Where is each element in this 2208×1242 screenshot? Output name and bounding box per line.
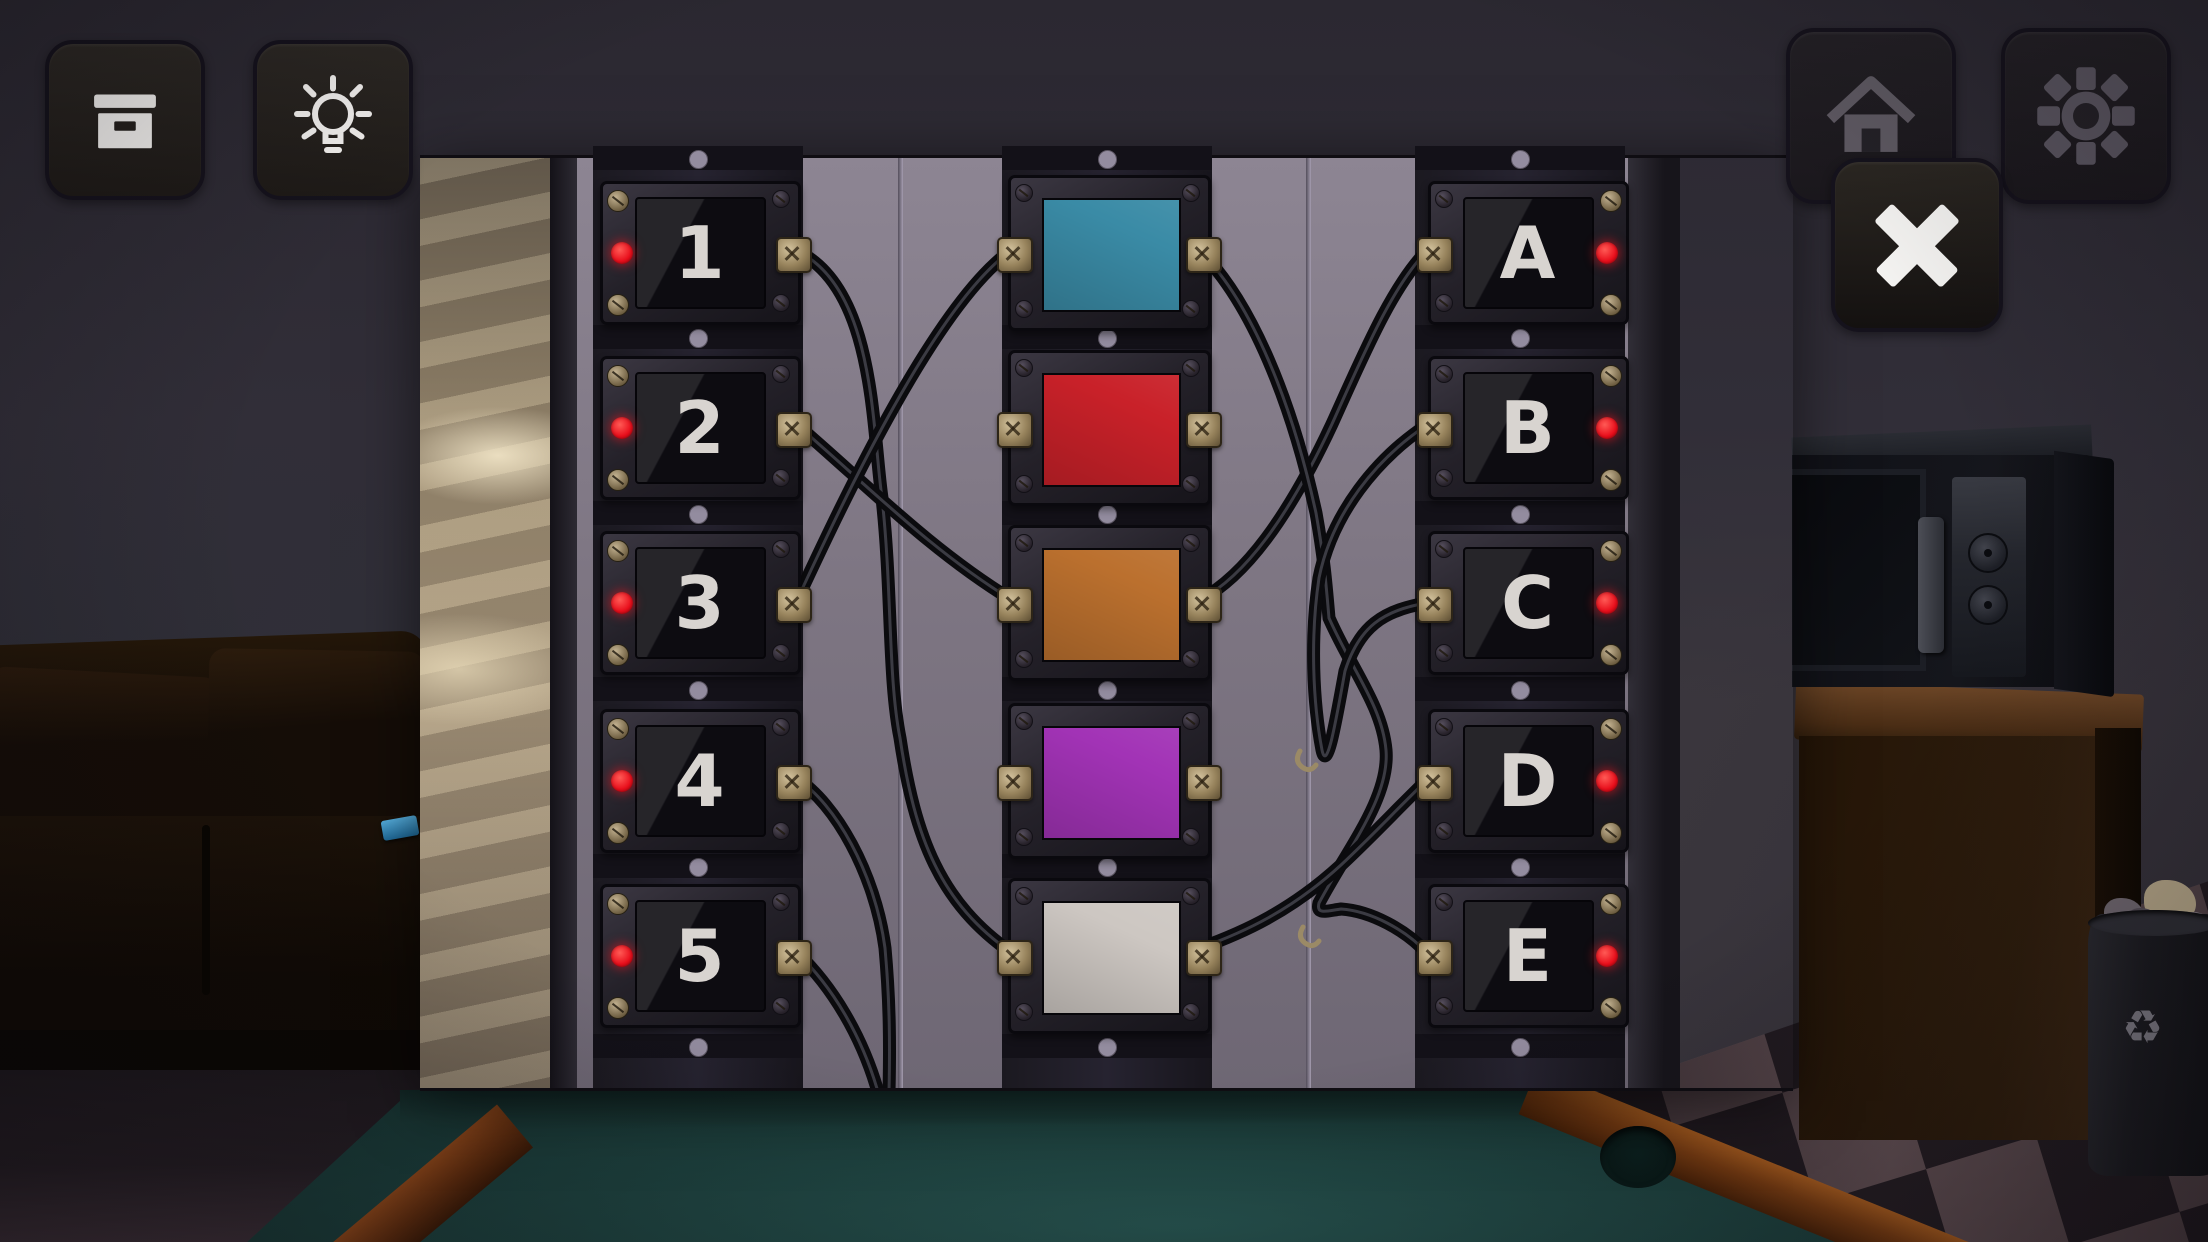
color-slot-purple[interactable] xyxy=(1008,703,1211,859)
screw-icon xyxy=(1435,893,1453,911)
close-button[interactable] xyxy=(1831,158,2003,332)
screw-icon xyxy=(1182,1003,1200,1021)
screw-icon xyxy=(772,822,790,840)
color-slot-teal[interactable] xyxy=(1008,175,1211,331)
screw-icon xyxy=(1182,300,1200,318)
terminal-plate: 5 xyxy=(635,900,766,1012)
terminal-label: C xyxy=(1501,561,1556,645)
screw-icon xyxy=(1600,644,1622,666)
wire-connector[interactable] xyxy=(1417,412,1453,448)
color-swatch-orange xyxy=(1042,548,1181,662)
screw-icon xyxy=(1182,359,1200,377)
screw-icon xyxy=(607,997,629,1019)
screw-icon xyxy=(1182,184,1200,202)
terminal-label: 4 xyxy=(674,739,726,823)
microwave-control-panel xyxy=(1952,477,2026,677)
rail-dot xyxy=(1098,505,1117,524)
terminal-label: 1 xyxy=(674,211,726,295)
wire-connector[interactable] xyxy=(776,412,812,448)
red-led-indicator xyxy=(611,242,633,264)
screw-icon xyxy=(1015,650,1033,668)
microwave-knob xyxy=(1968,585,2008,625)
screw-icon xyxy=(1182,534,1200,552)
left-terminal-3[interactable]: 3 xyxy=(600,531,801,675)
wire-connector[interactable] xyxy=(997,237,1033,273)
color-swatch-red xyxy=(1042,373,1181,487)
panel-frame-left xyxy=(550,158,577,1088)
right-terminal-C[interactable]: C xyxy=(1428,531,1629,675)
settings-button[interactable] xyxy=(2001,28,2171,204)
wire-connector[interactable] xyxy=(1417,765,1453,801)
wire-connector[interactable] xyxy=(997,940,1033,976)
wire-connector[interactable] xyxy=(1186,237,1222,273)
screw-icon xyxy=(1015,300,1033,318)
archive-box-icon xyxy=(82,77,168,163)
rail-dot xyxy=(689,1038,708,1057)
screw-icon xyxy=(1435,469,1453,487)
rail-dot xyxy=(1098,150,1117,169)
screw-icon xyxy=(607,822,629,844)
home-icon xyxy=(1821,66,1921,166)
screw-icon xyxy=(1182,828,1200,846)
color-swatch-purple xyxy=(1042,726,1181,840)
screw-icon xyxy=(1015,359,1033,377)
screw-icon xyxy=(1015,184,1033,202)
rail-dot xyxy=(1511,329,1530,348)
red-led-indicator xyxy=(611,770,633,792)
terminal-label: 3 xyxy=(674,561,726,645)
wire-connector[interactable] xyxy=(997,412,1033,448)
screw-icon xyxy=(1435,190,1453,208)
wire-connector[interactable] xyxy=(1186,587,1222,623)
screw-icon xyxy=(607,540,629,562)
right-terminal-E[interactable]: E xyxy=(1428,884,1629,1028)
screw-icon xyxy=(1600,718,1622,740)
wire-connector[interactable] xyxy=(776,940,812,976)
screw-icon xyxy=(1600,540,1622,562)
screw-icon xyxy=(1600,294,1622,316)
terminal-label: 2 xyxy=(674,386,726,470)
terminal-plate: 3 xyxy=(635,547,766,659)
gear-icon xyxy=(2034,64,2138,168)
color-swatch-teal xyxy=(1042,198,1181,312)
microwave-door-window xyxy=(1792,469,1926,671)
rail-dot xyxy=(1511,505,1530,524)
rail-dot xyxy=(1098,858,1117,877)
recycle-icon: ♻ xyxy=(2122,1000,2163,1054)
screw-icon xyxy=(772,190,790,208)
rail-dot xyxy=(1511,1038,1530,1057)
screw-icon xyxy=(1435,540,1453,558)
screw-icon xyxy=(1435,294,1453,312)
color-slot-white[interactable] xyxy=(1008,878,1211,1034)
rail-dot xyxy=(1098,681,1117,700)
wire-connector[interactable] xyxy=(1417,587,1453,623)
left-terminal-2[interactable]: 2 xyxy=(600,356,801,500)
hint-button[interactable] xyxy=(253,40,413,200)
screw-icon xyxy=(772,718,790,736)
screw-icon xyxy=(772,997,790,1015)
microwave-handle xyxy=(1918,517,1944,653)
wire-connector[interactable] xyxy=(1417,940,1453,976)
pool-table xyxy=(230,1078,1950,1242)
game-screen: ♻ 12345ABCDE xyxy=(0,0,2208,1242)
terminal-plate: D xyxy=(1463,725,1594,837)
terminal-label: A xyxy=(1500,211,1558,295)
wire-connector[interactable] xyxy=(776,237,812,273)
screw-icon xyxy=(607,294,629,316)
trash-can: ♻ xyxy=(2088,888,2208,1184)
rail-dot xyxy=(689,858,708,877)
screw-icon xyxy=(1015,1003,1033,1021)
panel-seam xyxy=(1306,158,1311,1088)
screw-icon xyxy=(1015,712,1033,730)
color-slot-red[interactable] xyxy=(1008,350,1211,506)
screw-icon xyxy=(1182,712,1200,730)
lightbulb-icon xyxy=(285,72,381,168)
terminal-plate: 4 xyxy=(635,725,766,837)
screw-icon xyxy=(772,365,790,383)
rail-dot xyxy=(689,329,708,348)
terminal-plate: B xyxy=(1463,372,1594,484)
right-terminal-D[interactable]: D xyxy=(1428,709,1629,853)
wire-puzzle-popup: 12345ABCDE xyxy=(420,155,1793,1091)
red-led-indicator xyxy=(611,417,633,439)
screw-icon xyxy=(1600,822,1622,844)
screw-icon xyxy=(607,469,629,491)
left-terminal-1[interactable]: 1 xyxy=(600,181,801,325)
screw-icon xyxy=(772,540,790,558)
screw-icon xyxy=(1182,475,1200,493)
rail-dot xyxy=(1098,1038,1117,1057)
screw-icon xyxy=(1015,534,1033,552)
screw-icon xyxy=(1435,644,1453,662)
screw-icon xyxy=(772,644,790,662)
rail-dot xyxy=(1511,858,1530,877)
screw-icon xyxy=(1435,365,1453,383)
left-terminal-5[interactable]: 5 xyxy=(600,884,801,1028)
rail-dot xyxy=(689,505,708,524)
wire-connector[interactable] xyxy=(1186,940,1222,976)
terminal-label: 5 xyxy=(674,914,726,998)
terminal-label: D xyxy=(1498,739,1560,823)
screw-icon xyxy=(1182,650,1200,668)
red-led-indicator xyxy=(1596,770,1618,792)
screw-icon xyxy=(607,644,629,666)
terminal-plate: A xyxy=(1463,197,1594,309)
screw-icon xyxy=(1015,828,1033,846)
color-swatch-white xyxy=(1042,901,1181,1015)
red-led-indicator xyxy=(1596,945,1618,967)
screw-icon xyxy=(607,718,629,740)
panel-seam xyxy=(898,158,903,1088)
screw-icon xyxy=(607,190,629,212)
popup-right-wall-strip xyxy=(1680,158,1793,1088)
screw-icon xyxy=(1182,887,1200,905)
rail-dot xyxy=(1098,329,1117,348)
wire-connector[interactable] xyxy=(997,765,1033,801)
pool-table-pocket xyxy=(1600,1126,1676,1188)
screw-icon xyxy=(607,365,629,387)
red-led-indicator xyxy=(611,592,633,614)
screw-icon xyxy=(772,469,790,487)
screw-icon xyxy=(1600,893,1622,915)
panel-frame-right xyxy=(1628,158,1680,1088)
terminal-label: E xyxy=(1503,914,1554,998)
screw-icon xyxy=(1600,365,1622,387)
wire-connector[interactable] xyxy=(1186,765,1222,801)
terminal-plate: C xyxy=(1463,547,1594,659)
wire-connector[interactable] xyxy=(776,765,812,801)
red-led-indicator xyxy=(611,945,633,967)
screw-icon xyxy=(1435,718,1453,736)
screw-icon xyxy=(772,294,790,312)
popup-left-wall-strip xyxy=(420,158,550,1088)
screw-icon xyxy=(1015,475,1033,493)
wire-connector[interactable] xyxy=(1186,412,1222,448)
wire-connector[interactable] xyxy=(1417,237,1453,273)
terminal-label: B xyxy=(1500,386,1557,470)
microwave xyxy=(1792,425,2127,693)
screw-icon xyxy=(1015,887,1033,905)
screw-icon xyxy=(607,893,629,915)
red-led-indicator xyxy=(1596,417,1618,439)
terminal-plate: 1 xyxy=(635,197,766,309)
terminal-plate: 2 xyxy=(635,372,766,484)
wire-connector[interactable] xyxy=(776,587,812,623)
left-terminal-4[interactable]: 4 xyxy=(600,709,801,853)
couch xyxy=(0,620,430,1100)
rail-dot xyxy=(689,681,708,700)
screw-icon xyxy=(772,893,790,911)
microwave-knob xyxy=(1968,533,2008,573)
color-slot-orange[interactable] xyxy=(1008,525,1211,681)
right-terminal-A[interactable]: A xyxy=(1428,181,1629,325)
right-terminal-B[interactable]: B xyxy=(1428,356,1629,500)
rail-dot xyxy=(1511,150,1530,169)
close-x-icon xyxy=(1863,191,1971,299)
screw-icon xyxy=(1435,997,1453,1015)
screw-icon xyxy=(1435,822,1453,840)
screw-icon xyxy=(1600,469,1622,491)
screw-icon xyxy=(1600,997,1622,1019)
red-led-indicator xyxy=(1596,242,1618,264)
terminal-plate: E xyxy=(1463,900,1594,1012)
rail-dot xyxy=(1511,681,1530,700)
screw-icon xyxy=(1600,190,1622,212)
wire-connector[interactable] xyxy=(997,587,1033,623)
rail-dot xyxy=(689,150,708,169)
inventory-button[interactable] xyxy=(45,40,205,200)
red-led-indicator xyxy=(1596,592,1618,614)
